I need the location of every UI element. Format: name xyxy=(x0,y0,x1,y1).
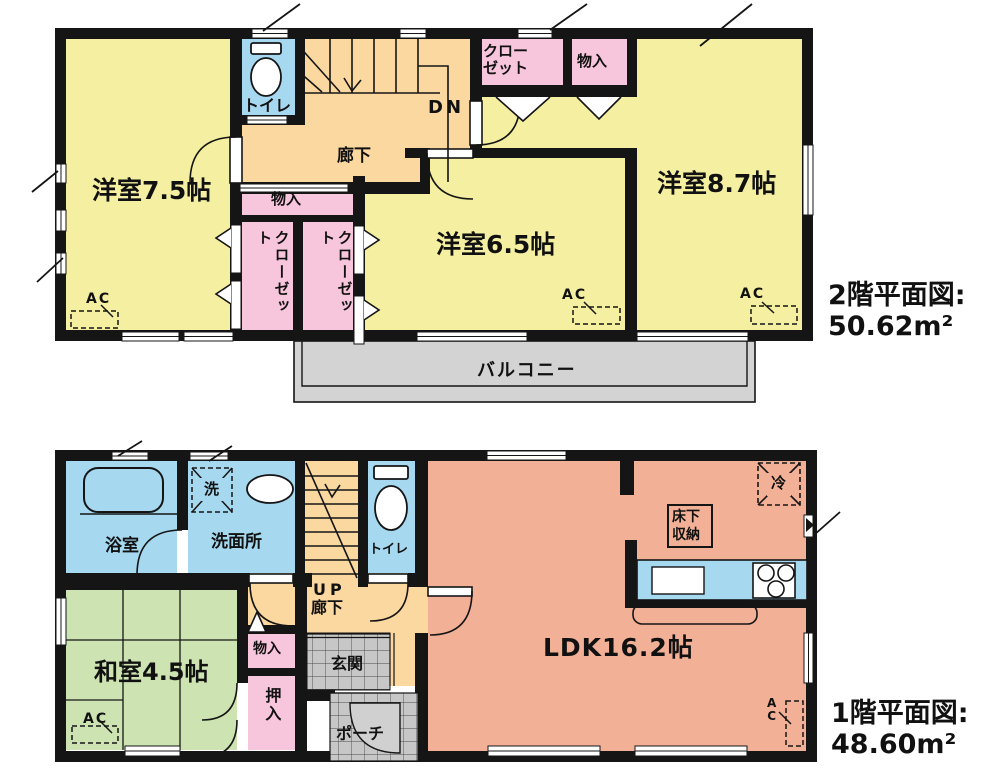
room-label-west65: 洋室6.5帖 xyxy=(436,231,555,260)
room-label-bath: 浴室 xyxy=(105,537,139,557)
closet-top-label-line1: クロー xyxy=(483,42,528,60)
kitchen-sink-icon xyxy=(652,567,704,594)
toilet-icon-2f xyxy=(251,43,281,96)
room-label-washroom: 洗面所 xyxy=(211,533,262,553)
ac-ldk-line1: A xyxy=(767,696,776,710)
porch-label: ポーチ xyxy=(336,725,384,743)
room-label-toilet-2f: トイレ xyxy=(243,97,291,115)
oshiire-label: 押入 xyxy=(262,687,280,749)
entrance-label: 玄関 xyxy=(331,655,363,673)
ac-label-washitsu: AC xyxy=(83,711,108,727)
ac-label-west87: AC xyxy=(740,286,765,302)
toilet-icon-1f xyxy=(374,466,408,530)
closet-top-label-line2: ゼット xyxy=(483,59,528,77)
closet-right-label: クローゼット xyxy=(318,230,353,330)
room-label-ldk: LDK16.2帖 xyxy=(543,634,694,663)
floor1-title: 1階平面図: xyxy=(831,698,969,729)
ac-label-west75: AC xyxy=(86,291,111,307)
underfloor-label-line1: 床下 xyxy=(672,509,700,525)
floor1-plan xyxy=(55,441,840,761)
ac-label-west65: AC xyxy=(562,287,587,303)
closet-left-label: クローゼット xyxy=(255,230,290,330)
balcony-label: バルコニー xyxy=(477,361,577,382)
ac-ldk-line2: C xyxy=(767,709,776,723)
floor2-title: 2階平面図: xyxy=(828,280,966,311)
storage-top-label: 物入 xyxy=(577,53,607,70)
storage-mid-label: 物入 xyxy=(271,191,301,208)
room-label-hallway-1f: 廊下 xyxy=(311,599,343,617)
room-label-west87: 洋室8.7帖 xyxy=(657,170,776,199)
floor1-area: 48.60m² xyxy=(831,729,956,760)
floorplan-page: 洋室7.5帖 洋室6.5帖 洋室8.7帖 トイレ 廊下 DN クロー ゼット 物… xyxy=(0,0,1000,784)
fridge-label: 冷 xyxy=(771,475,786,492)
floor2-area: 50.62m² xyxy=(828,311,953,342)
kitchen-counter xyxy=(637,560,807,600)
room-label-toilet-1f: トイレ xyxy=(369,543,408,558)
underfloor-label-line2: 収納 xyxy=(672,527,700,543)
room-label-west75: 洋室7.5帖 xyxy=(92,177,211,206)
room-label-hallway-2f: 廊下 xyxy=(337,147,371,167)
underfloor-storage-label: 床下 収納 xyxy=(672,509,700,544)
stairs-dn-label: DN xyxy=(428,98,464,119)
ac-label-ldk: A C xyxy=(767,697,776,723)
storage-1f-label: 物入 xyxy=(253,641,281,657)
sink-icon xyxy=(247,475,293,503)
stairs-up-label: UP xyxy=(313,581,346,599)
stove-icon xyxy=(753,563,795,598)
laundry-label: 洗 xyxy=(204,481,219,498)
room-label-washitsu: 和室4.5帖 xyxy=(94,659,209,687)
